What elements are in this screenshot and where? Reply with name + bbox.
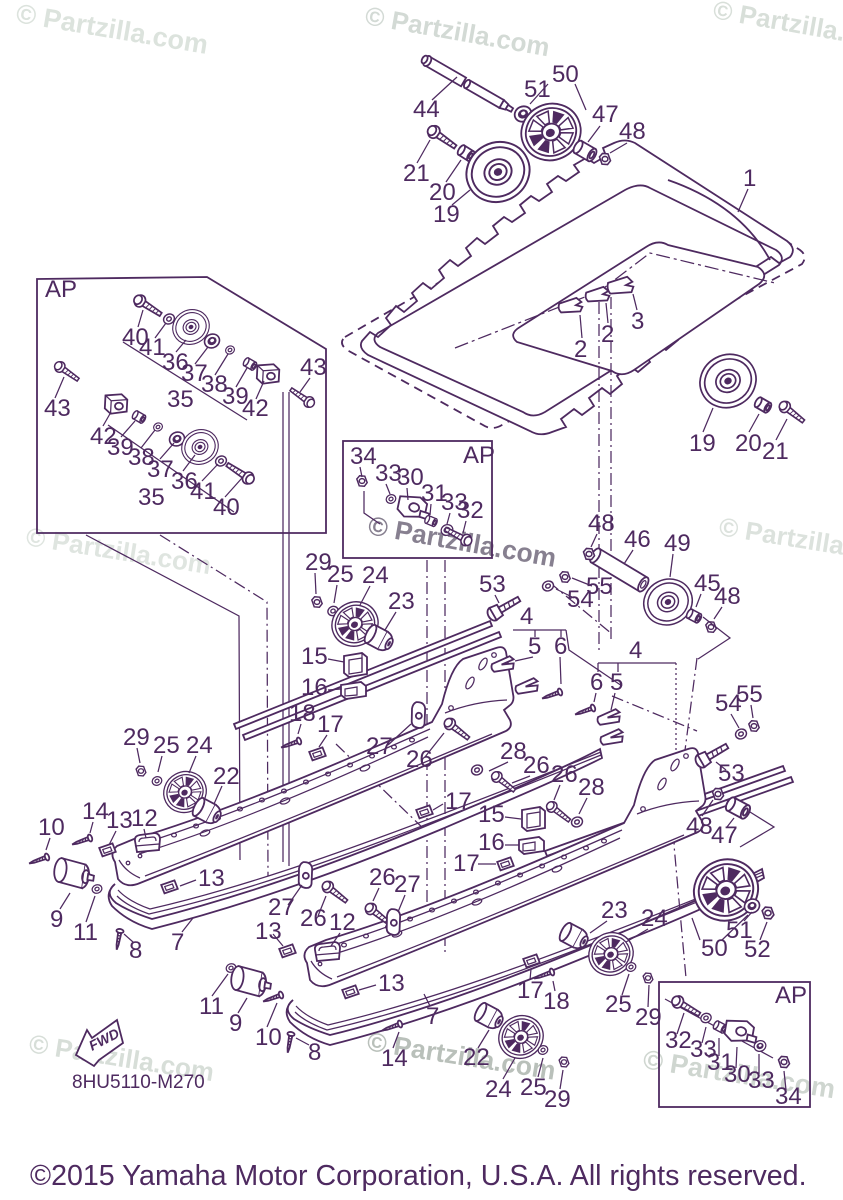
svg-text:28: 28 bbox=[578, 774, 605, 801]
svg-text:AP: AP bbox=[463, 442, 495, 469]
svg-text:6: 6 bbox=[554, 633, 567, 660]
svg-text:13: 13 bbox=[378, 970, 405, 997]
svg-text:23: 23 bbox=[388, 588, 415, 615]
svg-text:14: 14 bbox=[82, 798, 109, 825]
svg-text:51: 51 bbox=[524, 76, 551, 103]
svg-text:AP: AP bbox=[45, 276, 77, 303]
svg-text:53: 53 bbox=[479, 571, 506, 598]
svg-text:19: 19 bbox=[689, 430, 716, 457]
svg-text:48: 48 bbox=[686, 813, 713, 840]
svg-text:34: 34 bbox=[350, 443, 377, 470]
svg-text:26: 26 bbox=[300, 905, 327, 932]
svg-text:13: 13 bbox=[198, 865, 225, 892]
svg-text:24: 24 bbox=[485, 1076, 512, 1103]
svg-text:18: 18 bbox=[543, 988, 570, 1015]
svg-text:27: 27 bbox=[268, 894, 295, 921]
svg-text:17: 17 bbox=[445, 788, 472, 815]
svg-text:©2015 Yamaha Motor Corporation: ©2015 Yamaha Motor Corporation, U.S.A. A… bbox=[30, 1160, 807, 1192]
svg-text:5: 5 bbox=[528, 633, 541, 660]
svg-text:7: 7 bbox=[426, 1003, 439, 1030]
svg-text:26: 26 bbox=[551, 761, 578, 788]
svg-text:23: 23 bbox=[601, 897, 628, 924]
svg-text:55: 55 bbox=[736, 681, 763, 708]
svg-text:22: 22 bbox=[213, 763, 240, 790]
svg-text:40: 40 bbox=[213, 494, 240, 521]
svg-text:1: 1 bbox=[743, 165, 756, 192]
svg-text:27: 27 bbox=[366, 733, 393, 760]
svg-text:AP: AP bbox=[775, 982, 807, 1009]
svg-text:25: 25 bbox=[153, 732, 180, 759]
svg-text:25: 25 bbox=[327, 561, 354, 588]
svg-text:52: 52 bbox=[744, 936, 771, 963]
svg-text:26: 26 bbox=[406, 746, 433, 773]
svg-text:12: 12 bbox=[329, 909, 356, 936]
svg-text:4: 4 bbox=[520, 603, 533, 630]
svg-text:21: 21 bbox=[403, 160, 430, 187]
svg-text:16: 16 bbox=[478, 829, 505, 856]
svg-text:20: 20 bbox=[735, 430, 762, 457]
svg-text:11: 11 bbox=[199, 993, 224, 1020]
svg-text:24: 24 bbox=[362, 562, 389, 589]
svg-text:8HU5110-M270: 8HU5110-M270 bbox=[72, 1072, 205, 1093]
svg-text:22: 22 bbox=[463, 1044, 490, 1071]
svg-text:6: 6 bbox=[590, 669, 603, 696]
svg-text:44: 44 bbox=[413, 96, 440, 123]
svg-text:11: 11 bbox=[73, 919, 98, 946]
svg-text:4: 4 bbox=[629, 637, 642, 664]
svg-text:2: 2 bbox=[601, 321, 614, 348]
svg-text:35: 35 bbox=[167, 386, 194, 413]
svg-text:9: 9 bbox=[50, 906, 63, 933]
svg-text:26: 26 bbox=[523, 752, 550, 779]
svg-text:29: 29 bbox=[544, 1086, 571, 1113]
svg-text:15: 15 bbox=[478, 801, 505, 828]
svg-text:30: 30 bbox=[724, 1061, 751, 1088]
svg-text:33: 33 bbox=[748, 1067, 775, 1094]
svg-text:42: 42 bbox=[242, 395, 269, 422]
svg-text:47: 47 bbox=[711, 822, 738, 849]
svg-text:29: 29 bbox=[123, 724, 150, 751]
svg-text:25: 25 bbox=[520, 1074, 547, 1101]
svg-text:8: 8 bbox=[308, 1039, 321, 1066]
svg-text:17: 17 bbox=[317, 711, 344, 738]
svg-text:10: 10 bbox=[38, 814, 65, 841]
svg-text:48: 48 bbox=[714, 583, 741, 610]
svg-text:24: 24 bbox=[186, 732, 213, 759]
svg-text:12: 12 bbox=[131, 805, 158, 832]
svg-text:7: 7 bbox=[171, 929, 184, 956]
svg-text:10: 10 bbox=[255, 1024, 282, 1051]
svg-text:2: 2 bbox=[574, 336, 587, 363]
svg-text:14: 14 bbox=[381, 1045, 408, 1072]
svg-text:48: 48 bbox=[588, 510, 615, 537]
svg-text:18: 18 bbox=[289, 700, 316, 727]
svg-text:48: 48 bbox=[619, 118, 646, 145]
svg-text:37: 37 bbox=[147, 456, 174, 483]
svg-text:55: 55 bbox=[586, 573, 613, 600]
svg-text:53: 53 bbox=[718, 760, 745, 787]
svg-text:43: 43 bbox=[44, 395, 71, 422]
svg-text:13: 13 bbox=[255, 918, 282, 945]
svg-text:17: 17 bbox=[517, 977, 544, 1004]
svg-text:34: 34 bbox=[775, 1083, 802, 1110]
svg-text:25: 25 bbox=[605, 991, 632, 1018]
svg-text:24: 24 bbox=[641, 905, 668, 932]
svg-text:9: 9 bbox=[229, 1010, 242, 1037]
svg-text:13: 13 bbox=[106, 807, 133, 834]
svg-text:47: 47 bbox=[592, 101, 619, 128]
svg-text:17: 17 bbox=[453, 850, 480, 877]
svg-text:50: 50 bbox=[552, 61, 579, 88]
svg-text:32: 32 bbox=[457, 497, 484, 524]
svg-text:19: 19 bbox=[433, 201, 460, 228]
svg-text:49: 49 bbox=[664, 530, 691, 557]
svg-text:27: 27 bbox=[394, 871, 421, 898]
svg-text:21: 21 bbox=[762, 438, 789, 465]
svg-text:16: 16 bbox=[301, 674, 328, 701]
svg-text:26: 26 bbox=[369, 864, 396, 891]
svg-text:3: 3 bbox=[631, 308, 644, 335]
svg-text:43: 43 bbox=[300, 354, 327, 381]
svg-text:30: 30 bbox=[397, 464, 424, 491]
svg-text:29: 29 bbox=[635, 1004, 662, 1031]
svg-text:46: 46 bbox=[624, 526, 651, 553]
svg-text:35: 35 bbox=[138, 484, 165, 511]
svg-text:15: 15 bbox=[301, 643, 328, 670]
